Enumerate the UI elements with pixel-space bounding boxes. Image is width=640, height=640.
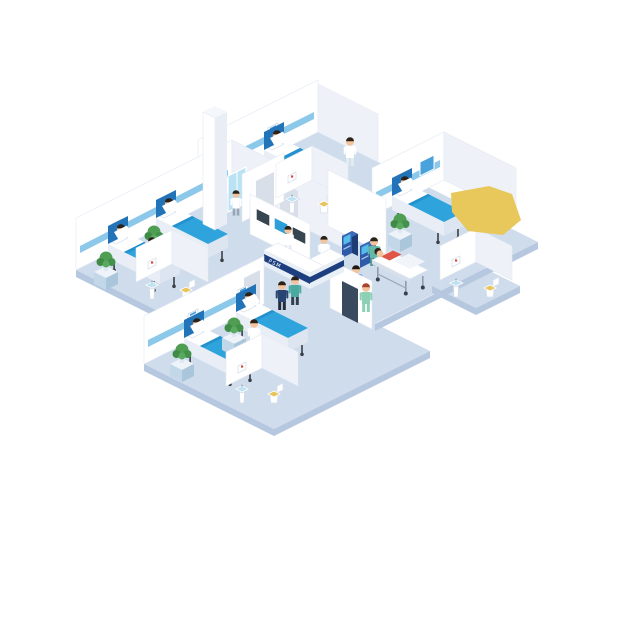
elevator-column-side xyxy=(215,112,227,230)
illustration-canvas: PSM xyxy=(0,0,640,640)
stretcher-wheel xyxy=(421,286,425,290)
hospital-isometric-illustration: PSM xyxy=(0,0,640,640)
stretcher-patient-head xyxy=(377,250,384,257)
stretcher-wheel xyxy=(404,292,408,296)
elevator-column xyxy=(203,112,215,230)
stretcher-wheel xyxy=(376,278,380,282)
self-service-kiosk xyxy=(342,231,358,258)
